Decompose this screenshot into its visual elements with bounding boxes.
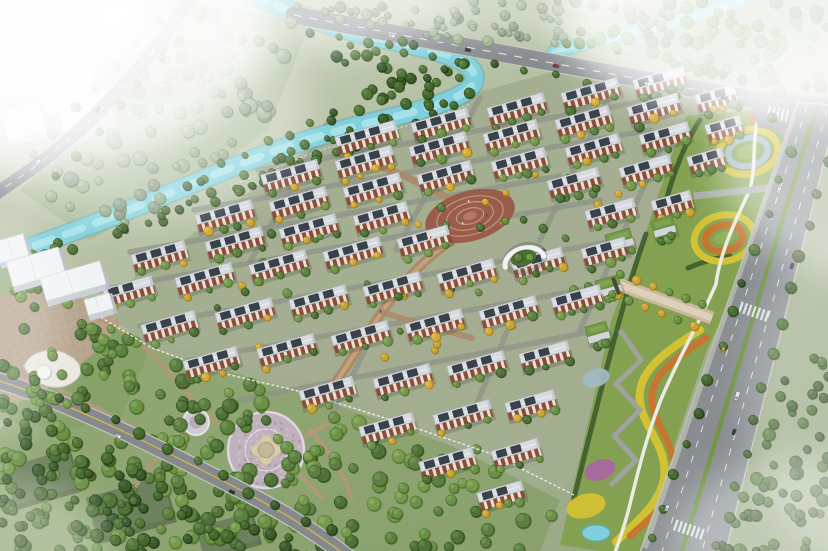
masterplan-scene — [0, 0, 828, 551]
pond — [582, 525, 610, 541]
aerial-rendering — [0, 0, 828, 551]
